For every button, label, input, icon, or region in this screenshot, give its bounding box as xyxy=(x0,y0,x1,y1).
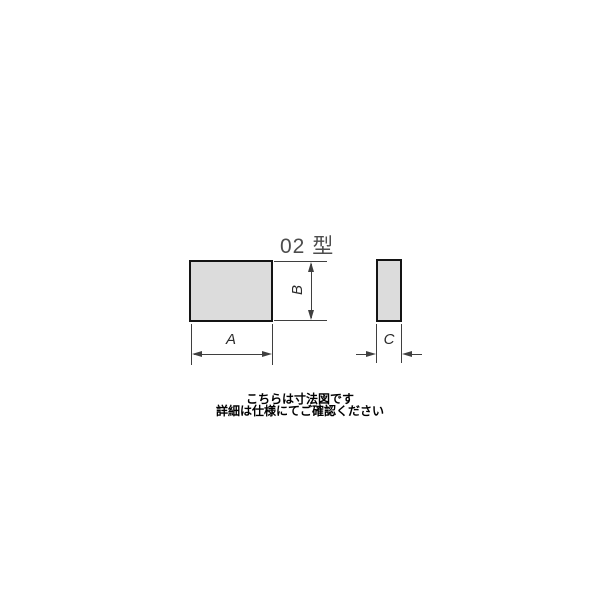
a-extension-line-left xyxy=(191,324,192,365)
a-extension-line-right xyxy=(272,324,273,365)
a-arrowhead-right-icon xyxy=(262,351,272,357)
type-title: 02 型 xyxy=(280,230,334,260)
b-extension-line-top xyxy=(274,261,327,262)
b-extension-line-bottom xyxy=(274,320,327,321)
dimension-label-a: A xyxy=(201,331,261,348)
dimension-diagram: 02 型 B A C こちらは寸法図です 詳細は仕様にてご確認ください xyxy=(0,0,600,600)
caption: こちらは寸法図です 詳細は仕様にてご確認ください xyxy=(0,393,600,417)
b-arrowhead-down-icon xyxy=(308,310,314,320)
c-arrowhead-inward-right-icon xyxy=(402,351,412,357)
caption-line2: 詳細は仕様にてご確認ください xyxy=(0,405,600,417)
b-arrowhead-up-icon xyxy=(308,262,314,272)
c-arrowhead-inward-left-icon xyxy=(366,351,376,357)
a-dimension-line xyxy=(194,354,269,355)
dimension-label-b: B xyxy=(289,270,305,310)
c-dimension-tail-right xyxy=(411,354,422,355)
a-arrowhead-left-icon xyxy=(192,351,202,357)
dimension-label-c: C xyxy=(374,331,404,348)
side-view-rect xyxy=(376,259,402,322)
front-view-rect xyxy=(189,260,273,322)
